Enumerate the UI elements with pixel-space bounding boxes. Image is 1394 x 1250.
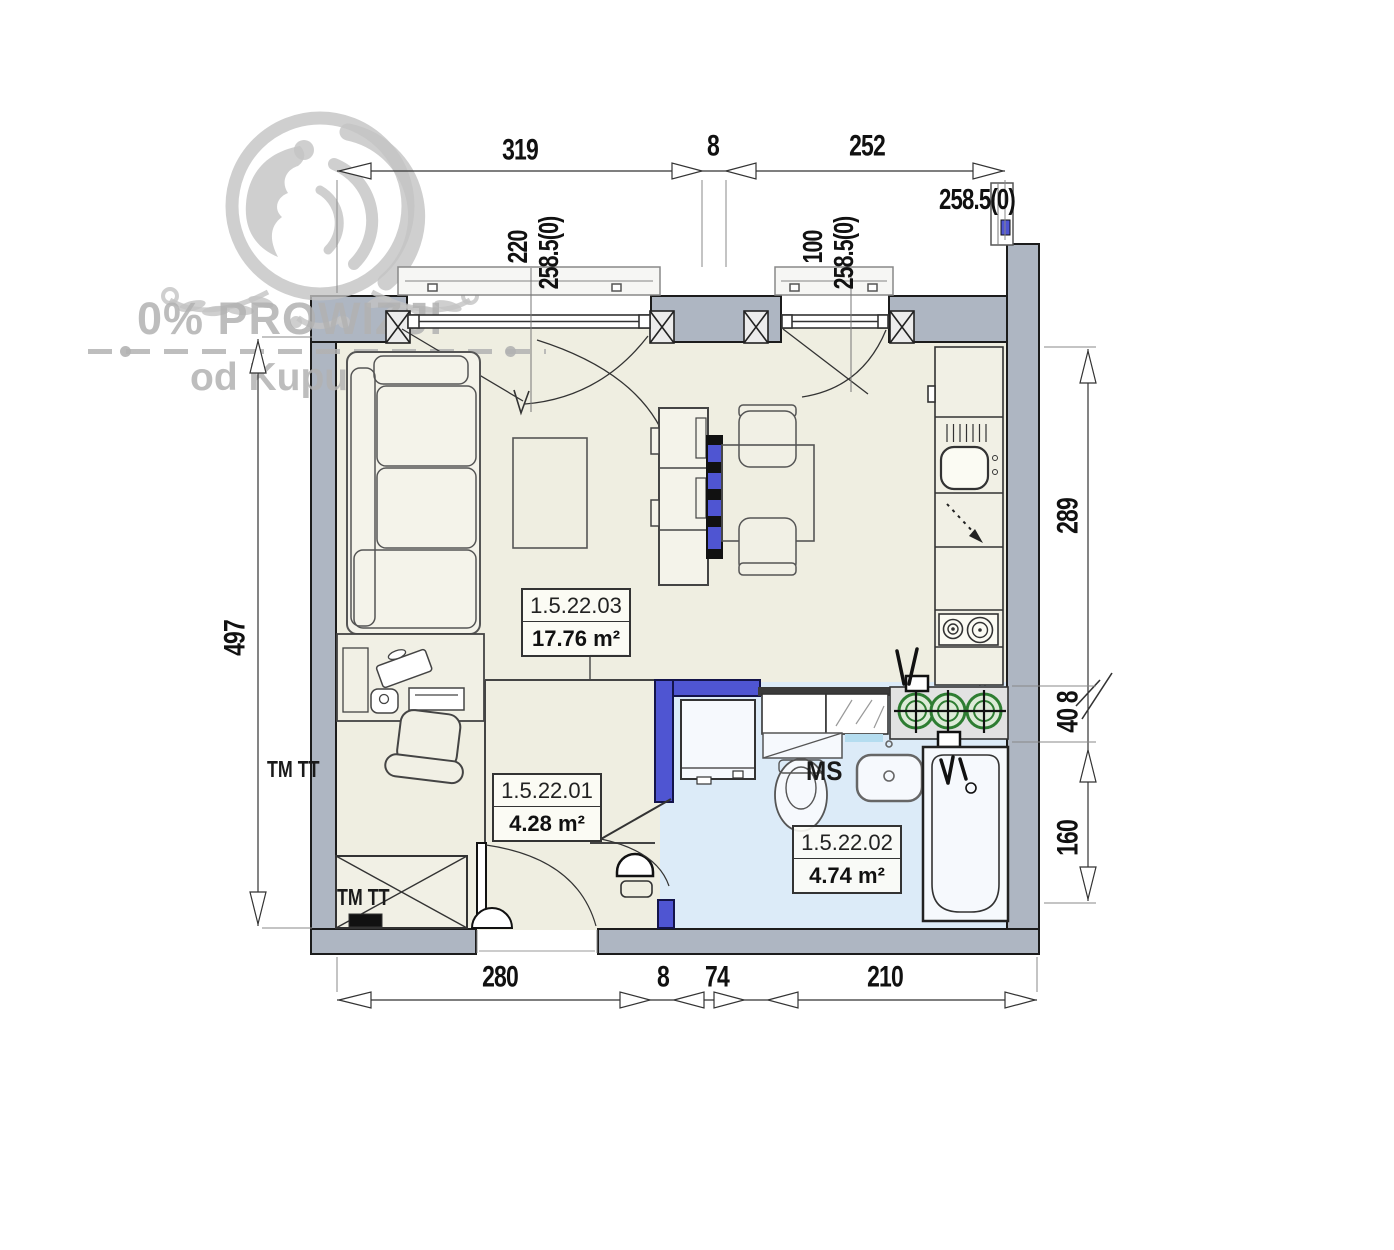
- room-label-1.5.22.03: 1.5.22.03 17.76 m²: [521, 588, 631, 657]
- room-label-1.5.22.02: 1.5.22.02 4.74 m²: [792, 825, 902, 894]
- dim-left-497: 497: [218, 620, 252, 656]
- room-area: 4.74 m²: [794, 859, 900, 892]
- dim-right-160: 160: [1051, 820, 1085, 856]
- dim-window-right-258: 258.5(0): [828, 217, 861, 290]
- room-id: 1.5.22.03: [523, 590, 629, 622]
- dim-bottom-8: 8: [657, 960, 669, 994]
- desk: [337, 634, 484, 721]
- hall-fixtures: [617, 854, 653, 897]
- dim-window-left-258: 258.5(0): [533, 217, 566, 290]
- tv-screen: [707, 436, 722, 558]
- dim-window-right-100: 100: [797, 230, 830, 263]
- dim-top-252: 252: [849, 129, 885, 163]
- dim-top-8: 8: [707, 129, 719, 163]
- dim-right-40-8: 40 8: [1051, 691, 1085, 732]
- dim-right-289: 289: [1051, 498, 1085, 534]
- riser-shaft: [890, 676, 1008, 747]
- washing-machine: [681, 700, 755, 784]
- annotation-tmtt-wardrobe: TM TT: [337, 885, 390, 911]
- balcony-sill: [398, 267, 893, 295]
- annotation-tmtt-wall: TM TT: [267, 757, 320, 783]
- window-frame: [408, 315, 888, 328]
- dim-bottom-280: 280: [482, 960, 518, 994]
- bathtub: [923, 747, 1008, 921]
- sofa: [347, 352, 480, 634]
- coffee-table: [513, 438, 587, 548]
- room-area: 17.76 m²: [523, 622, 629, 655]
- room-id: 1.5.22.01: [494, 775, 600, 807]
- dim-window-left-220: 220: [502, 230, 535, 263]
- room-id: 1.5.22.02: [794, 827, 900, 859]
- entrance-door: [472, 843, 597, 953]
- stove: [939, 614, 998, 645]
- washbasin: [857, 741, 922, 801]
- dim-bottom-74: 74: [705, 960, 729, 994]
- floor-plan-page: 0% PROWIZJI od Kupującego: [0, 0, 1394, 1250]
- dining-set: [722, 405, 814, 575]
- dim-bottom-210: 210: [867, 960, 903, 994]
- floor-plan-linework: [0, 0, 1394, 1250]
- tv-unit: [651, 408, 708, 585]
- dim-top-right-258: 258.5(0): [939, 184, 1015, 217]
- room-area: 4.28 m²: [494, 807, 600, 840]
- dim-top-319: 319: [502, 133, 538, 167]
- room-label-1.5.22.01: 1.5.22.01 4.28 m²: [492, 773, 602, 842]
- annotation-ms: MS: [806, 756, 842, 787]
